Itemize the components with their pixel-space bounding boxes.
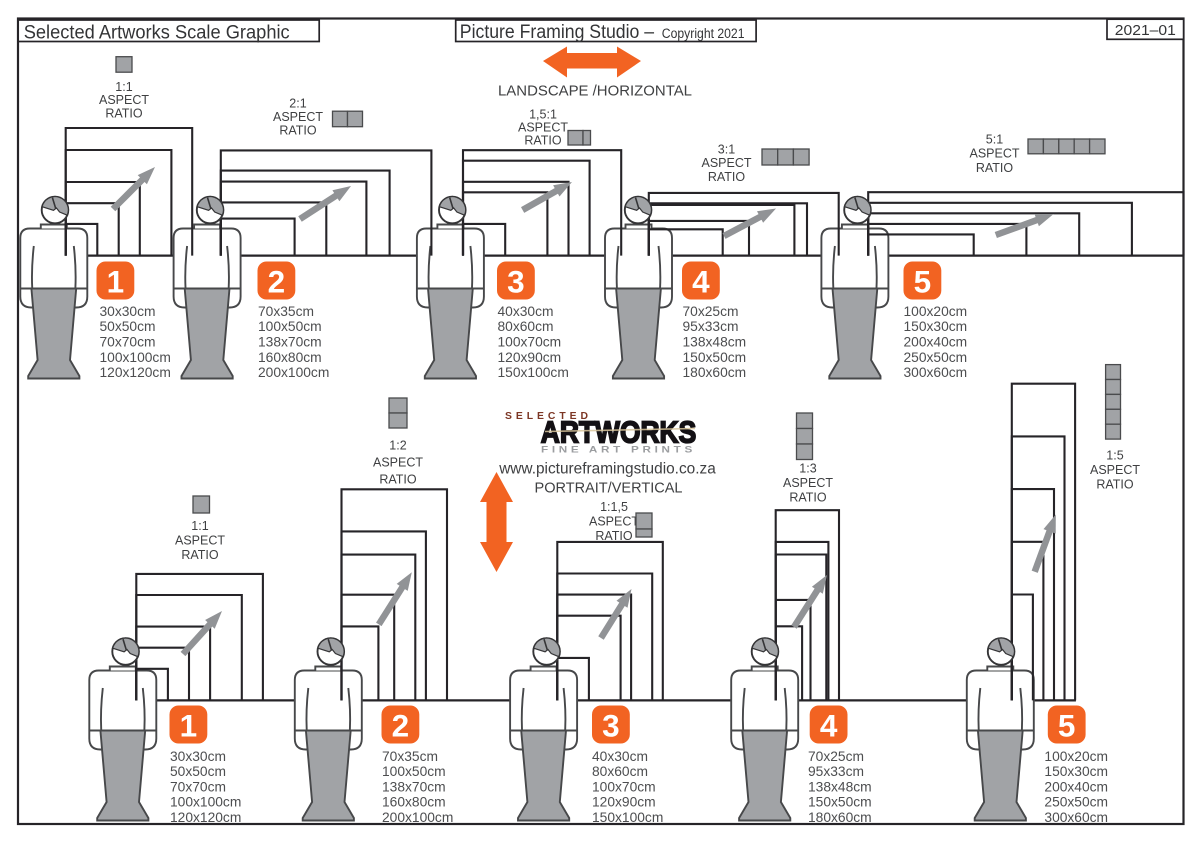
- svg-text:LANDSCAPE /HORIZONTAL: LANDSCAPE /HORIZONTAL: [498, 84, 692, 100]
- svg-text:Copyright 2021: Copyright 2021: [662, 26, 745, 41]
- svg-text:1:3ASPECTRATIO: 1:3ASPECTRATIO: [783, 462, 833, 505]
- svg-text:40x30cm80x60cm100x70cm120x90cm: 40x30cm80x60cm100x70cm120x90cm150x100cm: [592, 749, 663, 825]
- svg-text:3: 3: [507, 263, 525, 299]
- svg-text:PORTRAIT/VERTICAL: PORTRAIT/VERTICAL: [535, 479, 683, 496]
- svg-text:30x30cm50x50cm70x70cm100x100cm: 30x30cm50x50cm70x70cm100x100cm120x120cm: [170, 749, 241, 825]
- svg-text:5: 5: [1058, 707, 1076, 743]
- svg-text:1:1,5ASPECTRATIO: 1:1,5ASPECTRATIO: [589, 500, 639, 543]
- svg-text:100x20cm150x30cm200x40cm250x50: 100x20cm150x30cm200x40cm250x50cm300x60cm: [1044, 749, 1108, 825]
- svg-text:1:1ASPECTRATIO: 1:1ASPECTRATIO: [175, 519, 225, 562]
- svg-text:1:1ASPECTRATIO: 1:1ASPECTRATIO: [99, 80, 149, 120]
- svg-text:1: 1: [107, 263, 125, 299]
- svg-text:4: 4: [692, 263, 710, 299]
- svg-text:100x20cm150x30cm200x40cm250x50: 100x20cm150x30cm200x40cm250x50cm300x60cm: [904, 304, 968, 380]
- svg-text:1:2ASPECTRATIO: 1:2ASPECTRATIO: [373, 439, 423, 487]
- svg-text:Picture Framing Studio –: Picture Framing Studio –: [460, 22, 655, 43]
- svg-text:3:1ASPECTRATIO: 3:1ASPECTRATIO: [701, 142, 751, 184]
- svg-text:2:1ASPECTRATIO: 2:1ASPECTRATIO: [273, 97, 323, 138]
- svg-text:5: 5: [914, 263, 932, 299]
- svg-text:30x30cm50x50cm70x70cm100x100cm: 30x30cm50x50cm70x70cm100x100cm120x120cm: [100, 304, 171, 380]
- svg-text:www.pictureframingstudio.co.za: www.pictureframingstudio.co.za: [498, 460, 716, 477]
- svg-text:40x30cm80x60cm100x70cm120x90cm: 40x30cm80x60cm100x70cm120x90cm150x100cm: [498, 304, 569, 380]
- svg-text:Selected Artworks Scale Graphi: Selected Artworks Scale Graphic: [24, 23, 290, 44]
- svg-text:4: 4: [820, 707, 838, 743]
- svg-text:2: 2: [392, 707, 410, 743]
- svg-text:3: 3: [602, 707, 620, 743]
- svg-text:5:1ASPECTRATIO: 5:1ASPECTRATIO: [969, 133, 1019, 175]
- svg-text:70x25cm95x33cm138x48cm150x50cm: 70x25cm95x33cm138x48cm150x50cm180x60cm: [808, 749, 872, 825]
- svg-text:2021–01: 2021–01: [1115, 23, 1176, 39]
- svg-text:1:5ASPECTRATIO: 1:5ASPECTRATIO: [1090, 449, 1140, 492]
- svg-text:70x35cm100x50cm138x70cm160x80c: 70x35cm100x50cm138x70cm160x80cm200x100cm: [258, 304, 329, 380]
- svg-text:1,5:1ASPECTRATIO: 1,5:1ASPECTRATIO: [518, 108, 568, 148]
- svg-text:70x35cm100x50cm138x70cm160x80c: 70x35cm100x50cm138x70cm160x80cm200x100cm: [382, 749, 453, 825]
- svg-text:FINE ART PRINTS: FINE ART PRINTS: [541, 444, 696, 455]
- svg-text:70x25cm95x33cm138x48cm150x50cm: 70x25cm95x33cm138x48cm150x50cm180x60cm: [683, 304, 747, 380]
- svg-text:2: 2: [268, 263, 286, 299]
- svg-text:1: 1: [180, 707, 198, 743]
